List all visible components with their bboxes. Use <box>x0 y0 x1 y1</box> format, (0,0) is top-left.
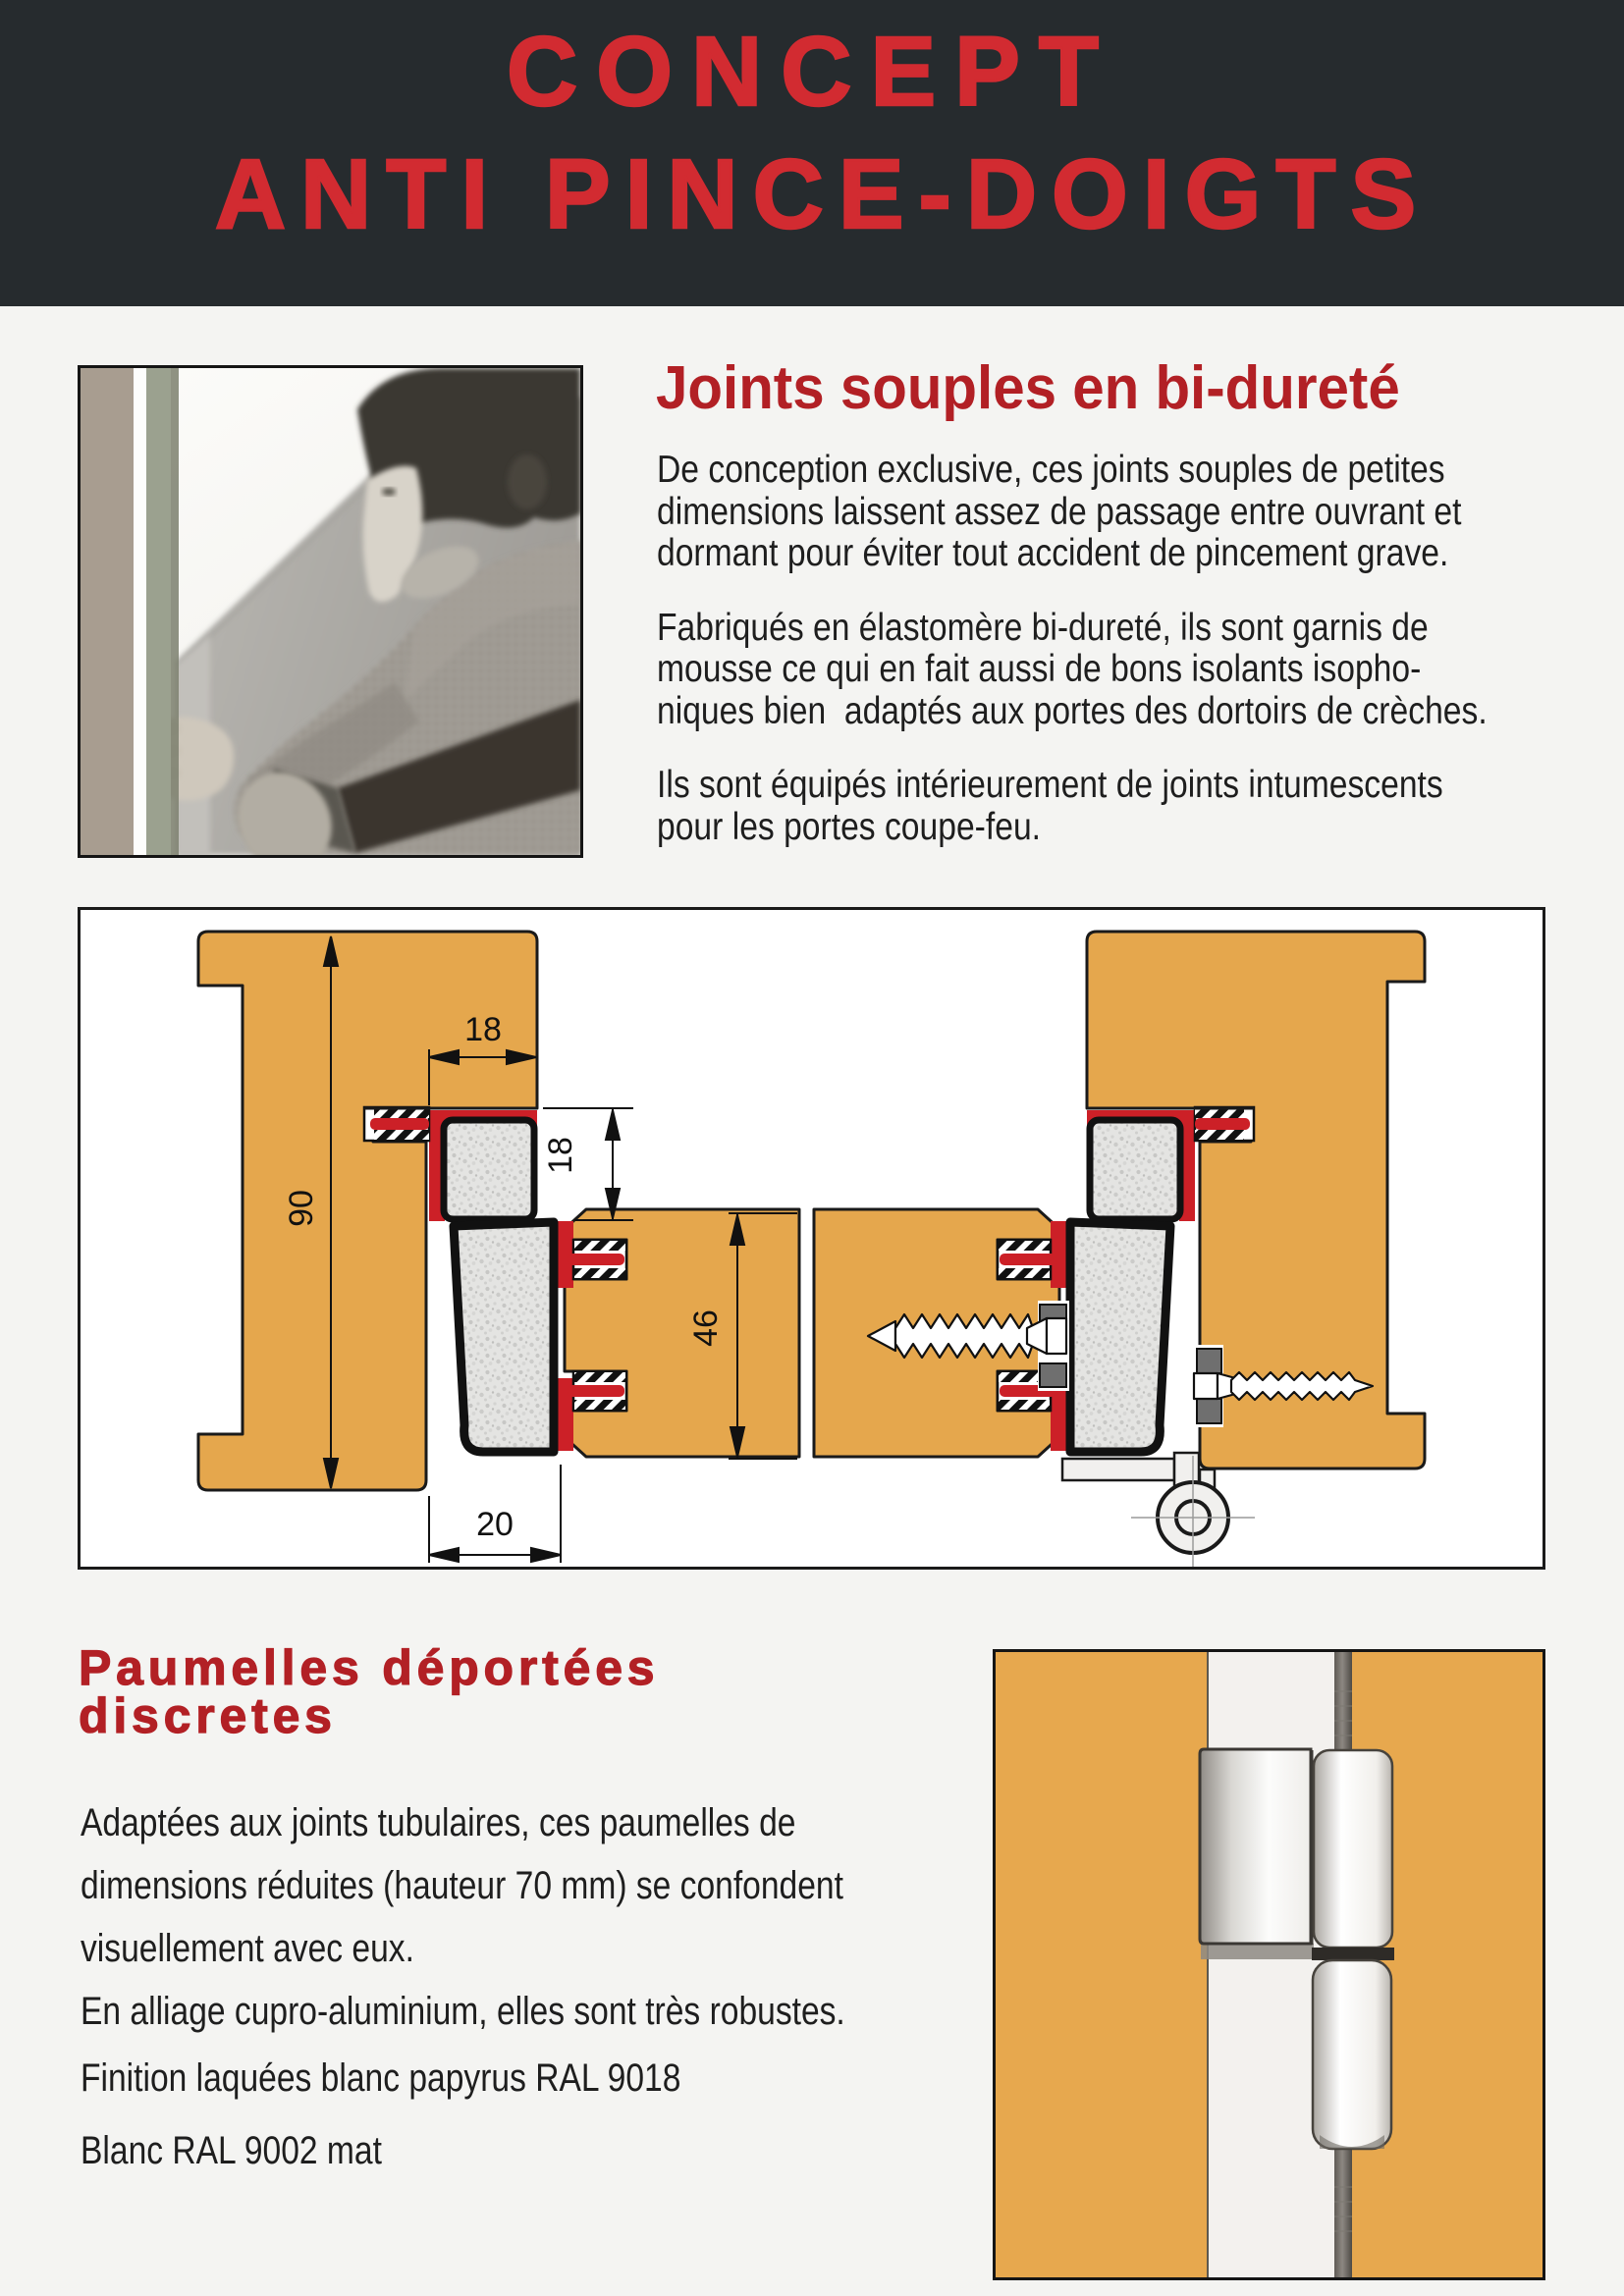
svg-text:46: 46 <box>687 1309 725 1347</box>
svg-text:18: 18 <box>542 1137 579 1174</box>
svg-text:20: 20 <box>476 1506 514 1543</box>
svg-text:90: 90 <box>283 1190 320 1227</box>
svg-text:18: 18 <box>464 1011 502 1048</box>
